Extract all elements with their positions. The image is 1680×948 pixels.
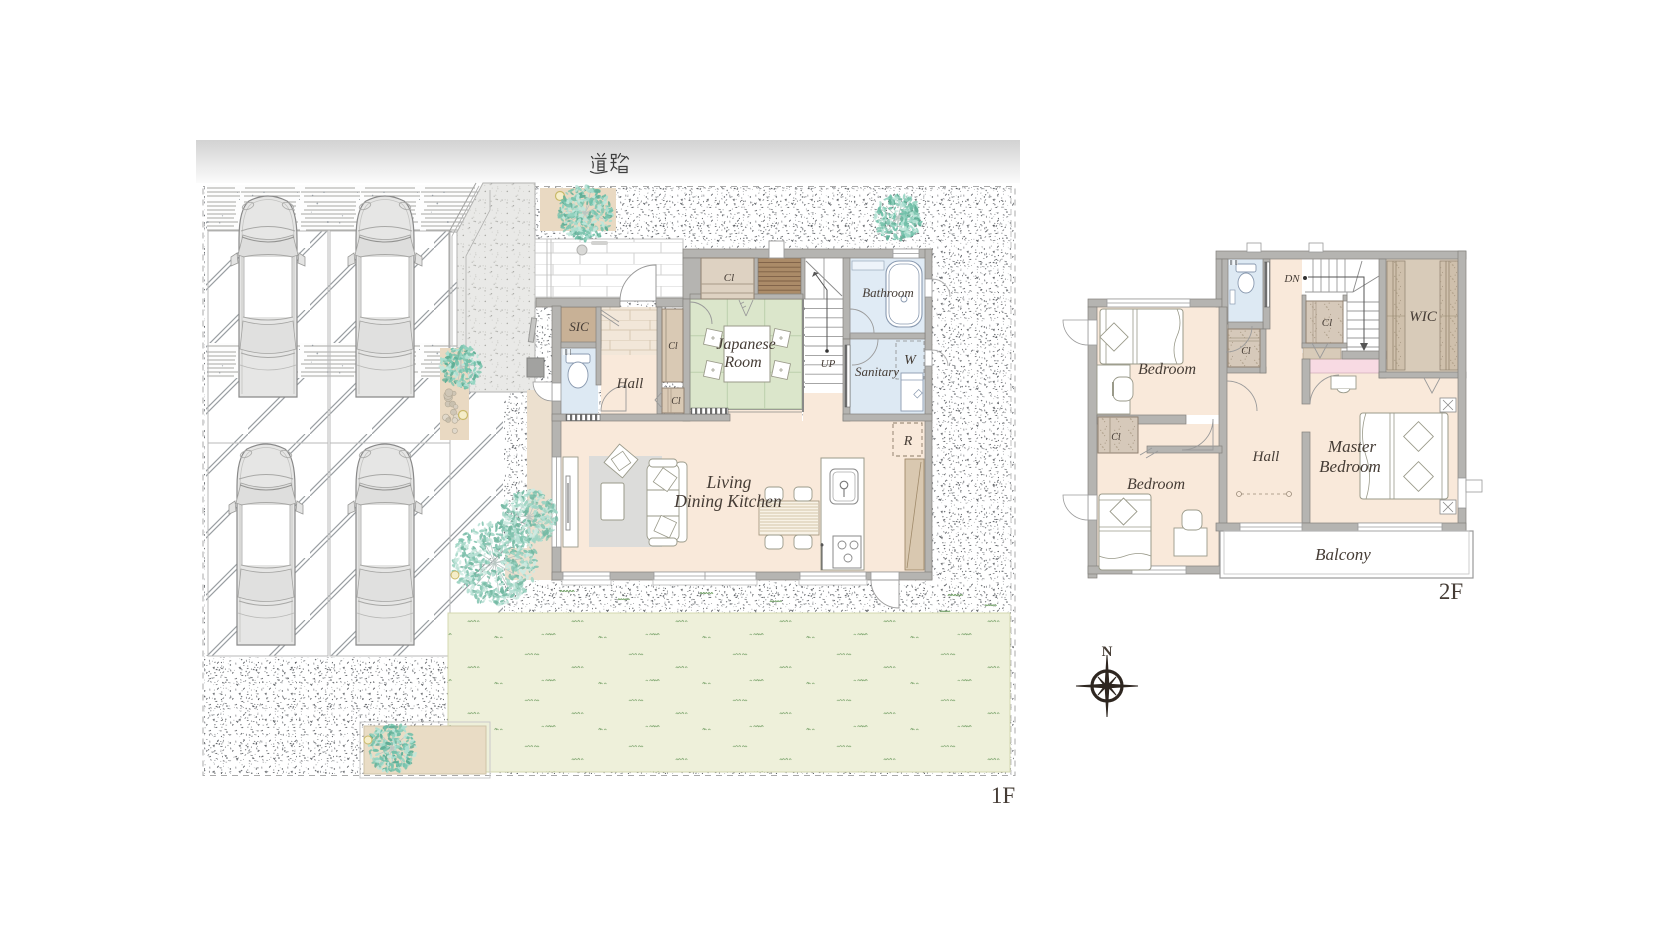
svg-text:R: R — [903, 434, 913, 449]
svg-text:Cl: Cl — [671, 396, 681, 407]
svg-text:SIC: SIC — [569, 319, 589, 334]
svg-text:1F: 1F — [991, 783, 1015, 808]
svg-text:Bathroom: Bathroom — [862, 285, 914, 300]
svg-text:Cl: Cl — [1241, 346, 1251, 357]
svg-text:Bedroom: Bedroom — [1319, 457, 1381, 476]
svg-text:Bedroom: Bedroom — [1127, 476, 1185, 493]
svg-text:Balcony: Balcony — [1315, 545, 1371, 564]
svg-text:Hall: Hall — [1252, 449, 1280, 465]
svg-text:2F: 2F — [1439, 579, 1463, 604]
svg-text:Cl: Cl — [724, 272, 734, 284]
svg-text:Sanitary: Sanitary — [855, 364, 899, 379]
svg-text:Hall: Hall — [616, 376, 644, 392]
svg-text:Master: Master — [1327, 437, 1377, 456]
svg-text:Living: Living — [706, 472, 752, 492]
svg-text:W: W — [904, 353, 917, 368]
svg-text:WIC: WIC — [1409, 309, 1437, 325]
svg-text:DN: DN — [1283, 273, 1300, 285]
svg-text:Room: Room — [723, 354, 761, 371]
svg-text:N: N — [1102, 644, 1113, 660]
svg-text:Cl: Cl — [1322, 317, 1332, 329]
svg-text:UP: UP — [821, 358, 836, 370]
svg-text:Cl: Cl — [668, 341, 678, 352]
svg-text:Bedroom: Bedroom — [1138, 361, 1196, 378]
svg-text:Japanese: Japanese — [716, 336, 776, 353]
svg-text:Dining Kitchen: Dining Kitchen — [673, 491, 782, 511]
svg-text:Cl: Cl — [1111, 432, 1121, 443]
